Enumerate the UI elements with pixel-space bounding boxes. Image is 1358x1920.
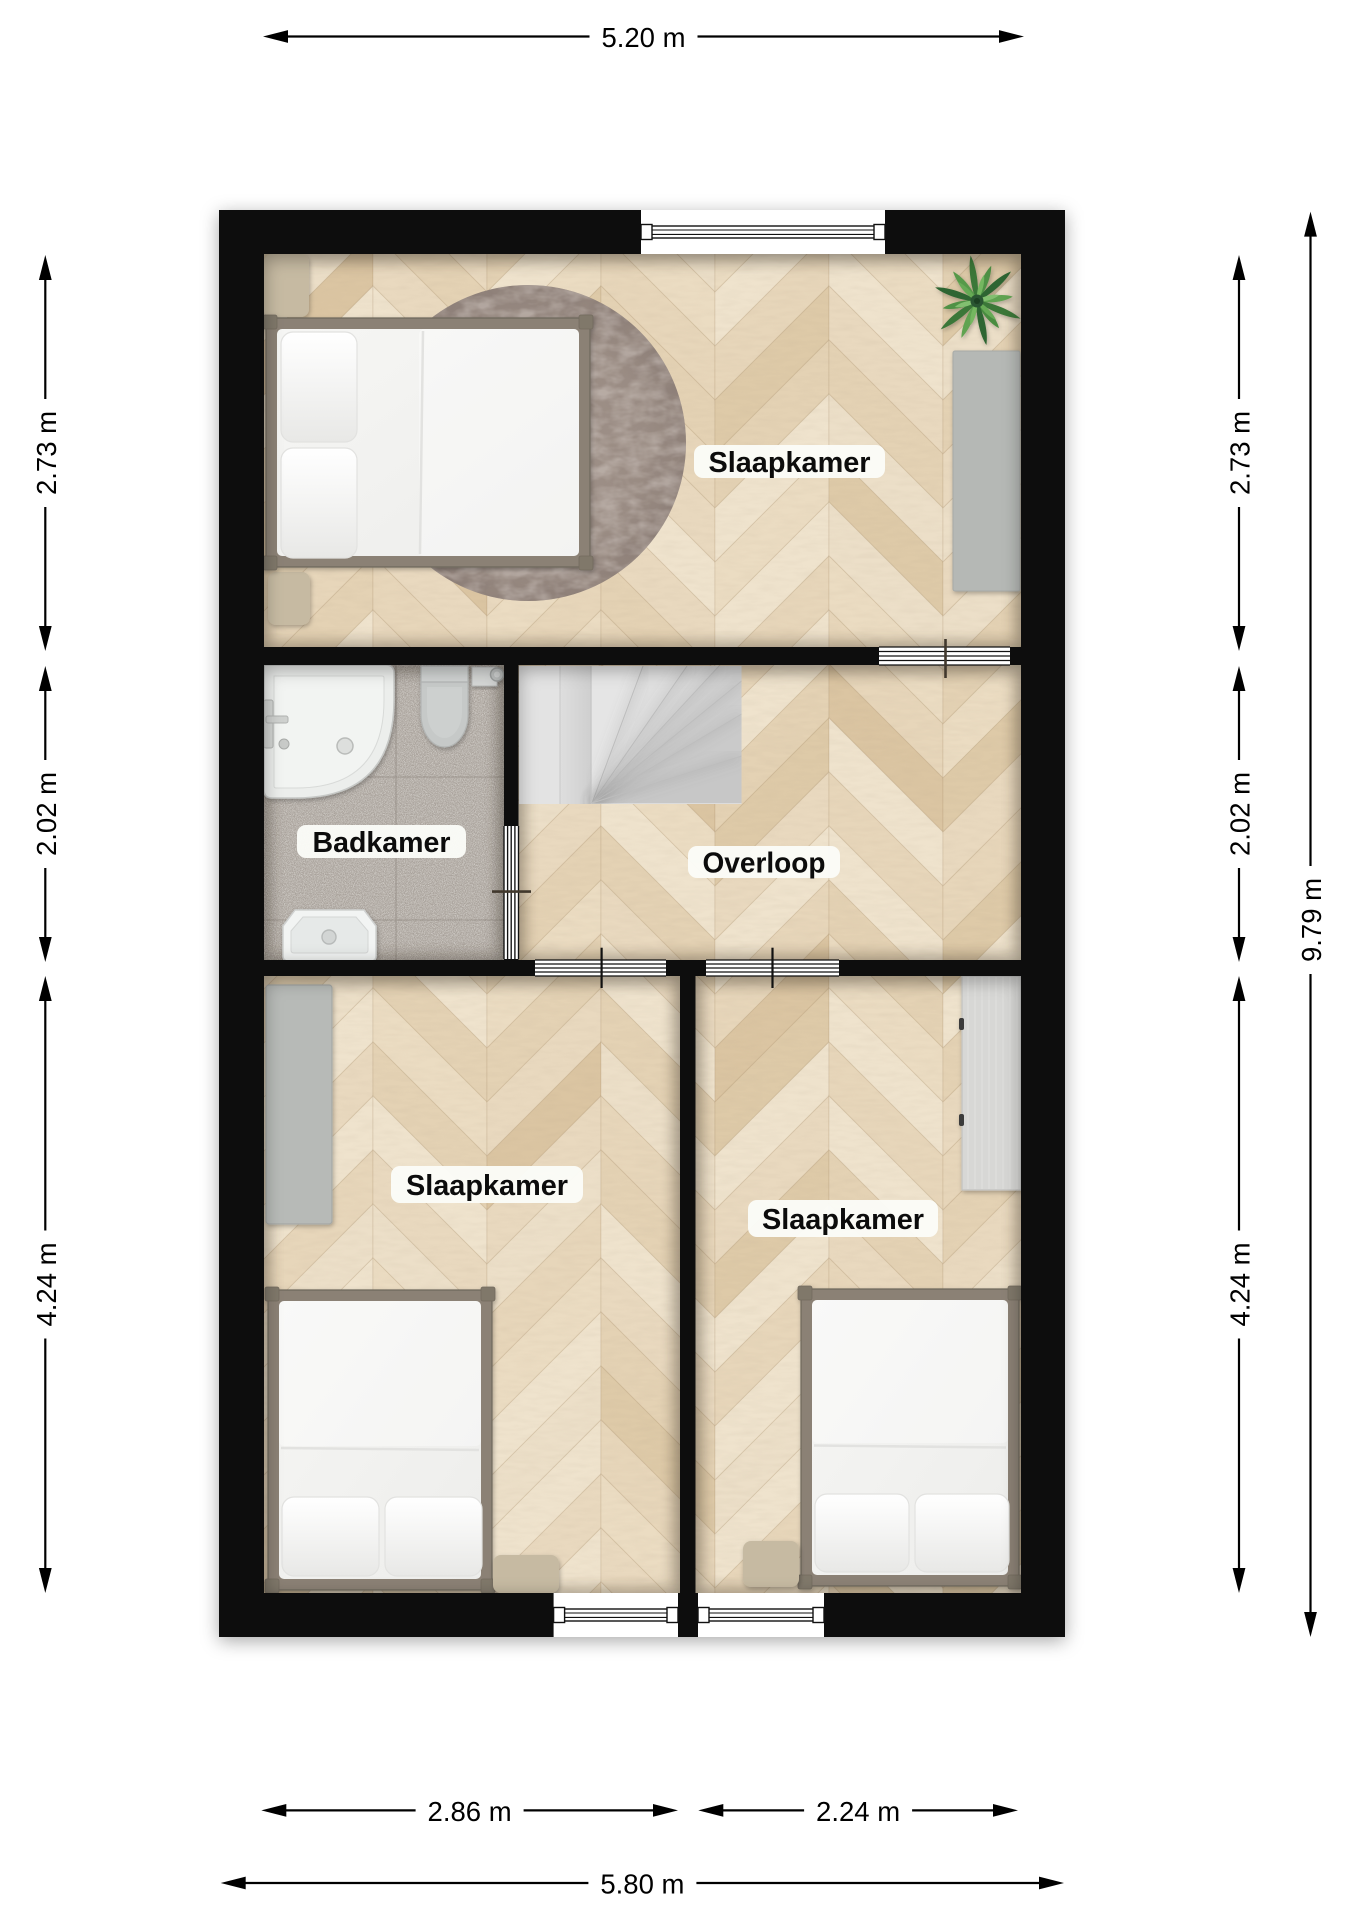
svg-text:Badkamer: Badkamer [313, 827, 451, 859]
svg-text:9.79 m: 9.79 m [1296, 878, 1327, 962]
svg-text:Overloop: Overloop [703, 848, 826, 880]
svg-text:5.80 m: 5.80 m [600, 1869, 684, 1900]
svg-text:2.73 m: 2.73 m [31, 411, 62, 495]
svg-text:2.02 m: 2.02 m [31, 772, 62, 856]
svg-text:4.24 m: 4.24 m [1225, 1242, 1256, 1326]
svg-text:Slaapkamer: Slaapkamer [406, 1170, 568, 1202]
svg-text:2.24 m: 2.24 m [816, 1796, 900, 1827]
svg-text:Slaapkamer: Slaapkamer [709, 447, 871, 479]
svg-text:Slaapkamer: Slaapkamer [762, 1204, 924, 1236]
svg-text:5.20 m: 5.20 m [601, 22, 685, 53]
svg-text:2.73 m: 2.73 m [1225, 411, 1256, 495]
svg-text:2.02 m: 2.02 m [1225, 772, 1256, 856]
svg-text:2.86 m: 2.86 m [428, 1796, 512, 1827]
svg-text:4.24 m: 4.24 m [31, 1242, 62, 1326]
